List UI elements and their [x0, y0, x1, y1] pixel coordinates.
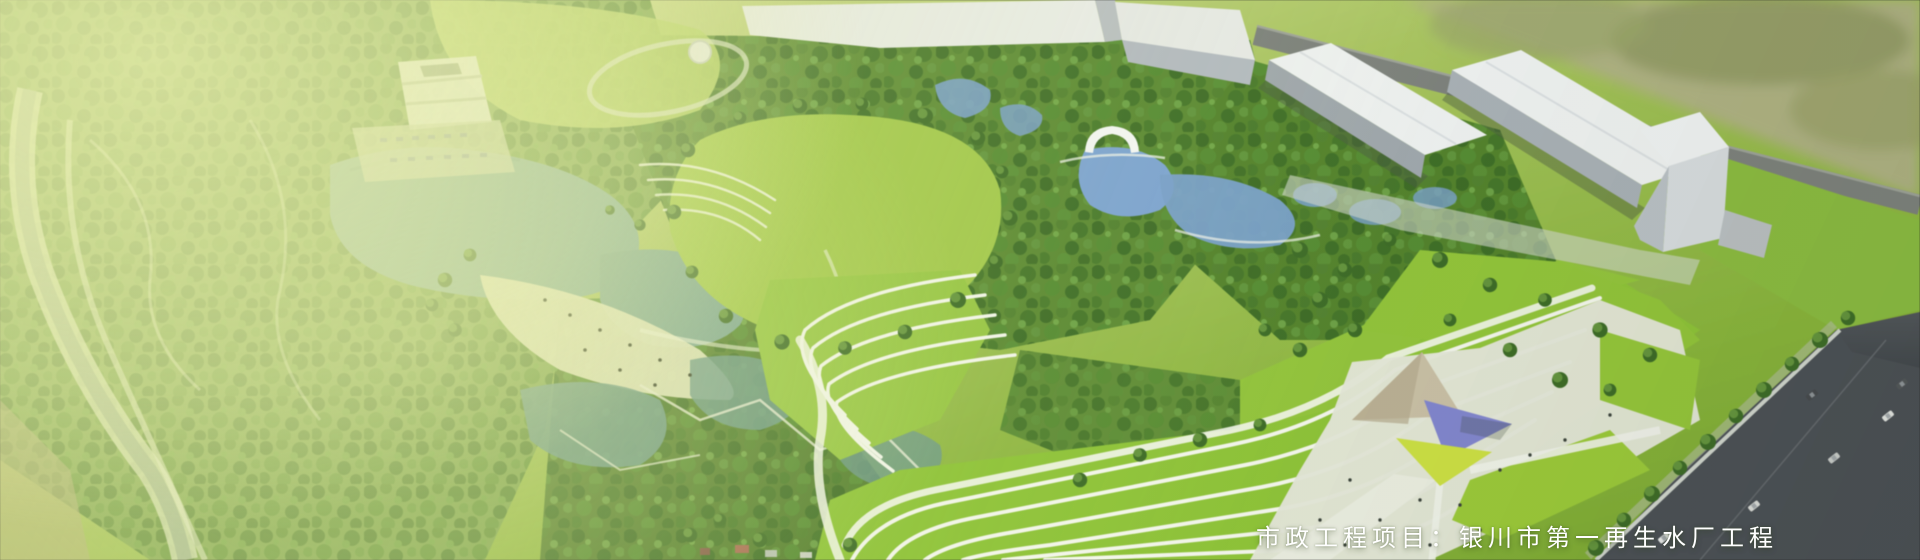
project-caption: 市政工程项目：银川市第一再生水厂工程 [1256, 518, 1778, 553]
parking-lot [352, 120, 515, 182]
render-painting [0, 0, 1920, 560]
aerial-render-scene: 市政工程项目：银川市第一再生水厂工程 [0, 0, 1920, 560]
